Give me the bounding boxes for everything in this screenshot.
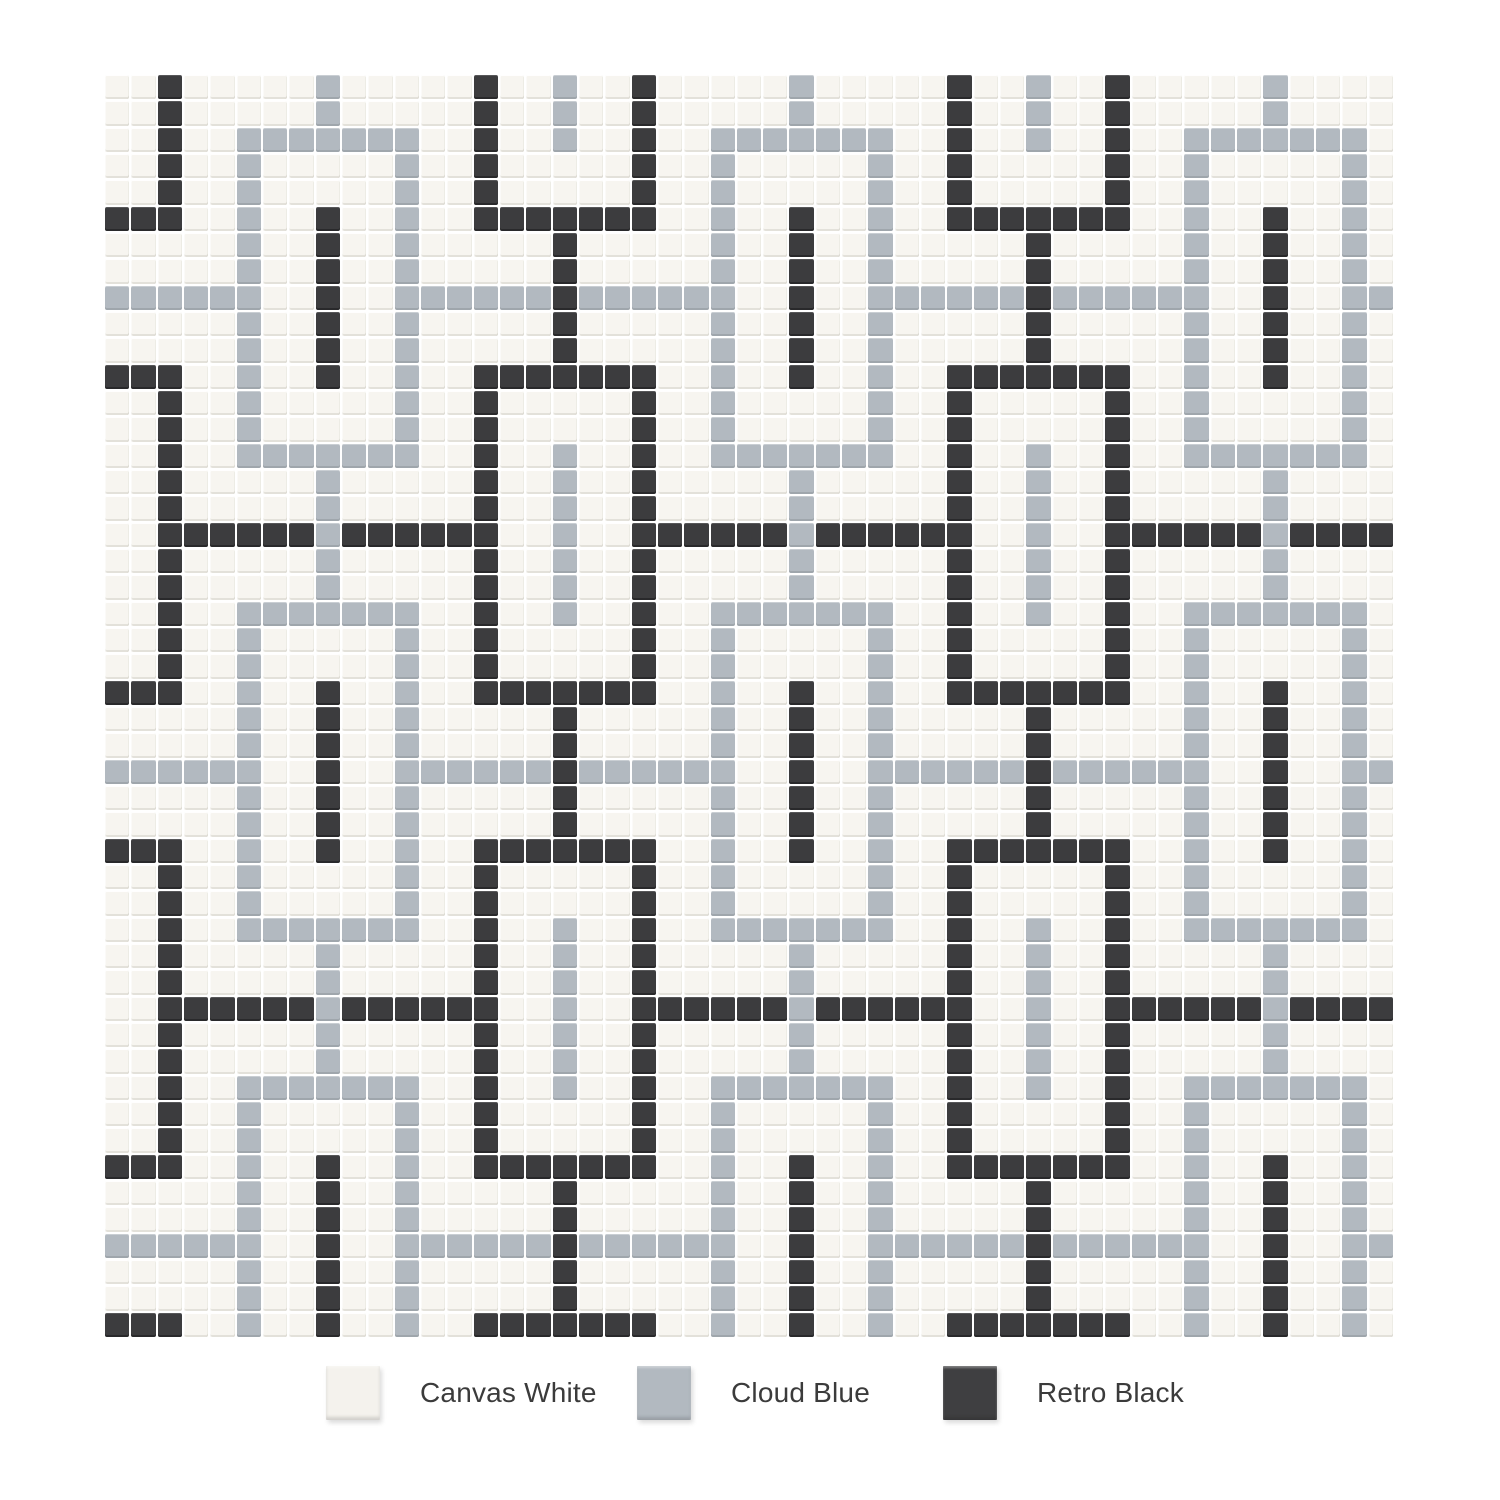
tile-retro-black bbox=[1105, 391, 1129, 415]
tile-canvas-white bbox=[526, 549, 550, 573]
tile-retro-black bbox=[868, 523, 892, 547]
tile-retro-black bbox=[632, 549, 656, 573]
tile-cloud-blue bbox=[1342, 338, 1366, 362]
tile-canvas-white bbox=[342, 891, 366, 915]
tile-canvas-white bbox=[500, 391, 524, 415]
tile-cloud-blue bbox=[1316, 1076, 1340, 1100]
tile-cloud-blue bbox=[395, 654, 419, 678]
tile-cloud-blue bbox=[1184, 391, 1208, 415]
tile-canvas-white bbox=[131, 918, 155, 942]
tile-cloud-blue bbox=[1158, 286, 1182, 310]
tile-retro-black bbox=[316, 1313, 340, 1337]
tile-retro-black bbox=[131, 681, 155, 705]
tile-cloud-blue bbox=[263, 918, 287, 942]
tile-canvas-white bbox=[895, 891, 919, 915]
tile-canvas-white bbox=[605, 391, 629, 415]
tile-canvas-white bbox=[737, 760, 761, 784]
tile-canvas-white bbox=[895, 1181, 919, 1205]
tile-retro-black bbox=[158, 1128, 182, 1152]
tile-canvas-white bbox=[1105, 1260, 1129, 1284]
tile-canvas-white bbox=[895, 1260, 919, 1284]
tile-retro-black bbox=[316, 1181, 340, 1205]
tile-cloud-blue bbox=[237, 654, 261, 678]
tile-canvas-white bbox=[1132, 575, 1156, 599]
tile-canvas-white bbox=[1079, 312, 1103, 336]
tile-canvas-white bbox=[105, 628, 129, 652]
tile-cloud-blue bbox=[1237, 918, 1261, 942]
tile-canvas-white bbox=[1211, 391, 1235, 415]
tile-cloud-blue bbox=[263, 128, 287, 152]
tile-canvas-white bbox=[1158, 180, 1182, 204]
tile-canvas-white bbox=[105, 312, 129, 336]
tile-retro-black bbox=[158, 391, 182, 415]
tile-canvas-white bbox=[1369, 338, 1393, 362]
tile-canvas-white bbox=[105, 1023, 129, 1047]
tile-canvas-white bbox=[763, 1023, 787, 1047]
tile-cloud-blue bbox=[237, 1155, 261, 1179]
tile-retro-black bbox=[1053, 839, 1077, 863]
tile-canvas-white bbox=[526, 575, 550, 599]
tile-canvas-white bbox=[789, 154, 813, 178]
tile-canvas-white bbox=[1316, 1181, 1340, 1205]
tile-canvas-white bbox=[921, 1155, 945, 1179]
tile-canvas-white bbox=[789, 1128, 813, 1152]
tile-canvas-white bbox=[447, 259, 471, 283]
tile-retro-black bbox=[895, 523, 919, 547]
tile-canvas-white bbox=[184, 1076, 208, 1100]
tile-canvas-white bbox=[974, 786, 998, 810]
tile-canvas-white bbox=[763, 1260, 787, 1284]
tile-retro-black bbox=[553, 1181, 577, 1205]
tile-canvas-white bbox=[105, 417, 129, 441]
tile-canvas-white bbox=[1158, 918, 1182, 942]
tile-retro-black bbox=[158, 1313, 182, 1337]
tile-canvas-white bbox=[500, 338, 524, 362]
tile-canvas-white bbox=[895, 1049, 919, 1073]
tile-canvas-white bbox=[921, 628, 945, 652]
tile-canvas-white bbox=[105, 180, 129, 204]
tile-canvas-white bbox=[842, 338, 866, 362]
tile-canvas-white bbox=[1132, 1049, 1156, 1073]
tile-cloud-blue bbox=[868, 338, 892, 362]
tile-canvas-white bbox=[526, 1181, 550, 1205]
tile-retro-black bbox=[789, 365, 813, 389]
tile-canvas-white bbox=[1000, 180, 1024, 204]
tile-canvas-white bbox=[1000, 391, 1024, 415]
tile-canvas-white bbox=[447, 444, 471, 468]
tile-retro-black bbox=[632, 444, 656, 468]
tile-canvas-white bbox=[842, 180, 866, 204]
tile-canvas-white bbox=[289, 1234, 313, 1258]
tile-canvas-white bbox=[342, 733, 366, 757]
tile-retro-black bbox=[789, 786, 813, 810]
tile-canvas-white bbox=[816, 101, 840, 125]
tile-retro-black bbox=[316, 312, 340, 336]
tile-canvas-white bbox=[368, 865, 392, 889]
tile-cloud-blue bbox=[842, 444, 866, 468]
tile-canvas-white bbox=[105, 444, 129, 468]
tile-retro-black bbox=[1263, 707, 1287, 731]
tile-canvas-white bbox=[1316, 1128, 1340, 1152]
tile-canvas-white bbox=[263, 180, 287, 204]
tile-canvas-white bbox=[421, 75, 445, 99]
tile-canvas-white bbox=[921, 496, 945, 520]
tile-cloud-blue bbox=[1105, 286, 1129, 310]
tile-retro-black bbox=[158, 1155, 182, 1179]
tile-cloud-blue bbox=[711, 1076, 735, 1100]
tile-retro-black bbox=[947, 417, 971, 441]
tile-cloud-blue bbox=[1342, 1076, 1366, 1100]
tile-canvas-white bbox=[816, 233, 840, 257]
tile-retro-black bbox=[474, 417, 498, 441]
tile-canvas-white bbox=[184, 444, 208, 468]
tile-cloud-blue bbox=[237, 312, 261, 336]
tile-canvas-white bbox=[474, 812, 498, 836]
tile-canvas-white bbox=[1237, 101, 1261, 125]
tile-canvas-white bbox=[974, 707, 998, 731]
tile-canvas-white bbox=[816, 365, 840, 389]
tile-canvas-white bbox=[895, 1207, 919, 1231]
tile-canvas-white bbox=[763, 707, 787, 731]
tile-canvas-white bbox=[184, 733, 208, 757]
tile-cloud-blue bbox=[1263, 470, 1287, 494]
tile-cloud-blue bbox=[1105, 1234, 1129, 1258]
tile-cloud-blue bbox=[789, 997, 813, 1021]
tile-canvas-white bbox=[1237, 286, 1261, 310]
tile-cloud-blue bbox=[1026, 602, 1050, 626]
tile-cloud-blue bbox=[868, 865, 892, 889]
tile-canvas-white bbox=[684, 891, 708, 915]
tile-canvas-white bbox=[763, 470, 787, 494]
tile-cloud-blue bbox=[789, 75, 813, 99]
tile-retro-black bbox=[1105, 523, 1129, 547]
tile-canvas-white bbox=[895, 101, 919, 125]
tile-retro-black bbox=[789, 233, 813, 257]
tile-cloud-blue bbox=[1026, 496, 1050, 520]
tile-canvas-white bbox=[1237, 470, 1261, 494]
tile-canvas-white bbox=[842, 1155, 866, 1179]
tile-retro-black bbox=[789, 1155, 813, 1179]
tile-cloud-blue bbox=[395, 1234, 419, 1258]
tile-canvas-white bbox=[447, 496, 471, 520]
tile-canvas-white bbox=[263, 681, 287, 705]
tile-canvas-white bbox=[1237, 75, 1261, 99]
tile-canvas-white bbox=[1053, 549, 1077, 573]
tile-canvas-white bbox=[763, 391, 787, 415]
tile-canvas-white bbox=[342, 207, 366, 231]
tile-canvas-white bbox=[184, 891, 208, 915]
tile-cloud-blue bbox=[711, 365, 735, 389]
tile-canvas-white bbox=[816, 312, 840, 336]
tile-canvas-white bbox=[1079, 997, 1103, 1021]
tile-canvas-white bbox=[526, 786, 550, 810]
tile-retro-black bbox=[579, 365, 603, 389]
tile-retro-black bbox=[816, 997, 840, 1021]
tile-canvas-white bbox=[605, 891, 629, 915]
tile-cloud-blue bbox=[658, 1234, 682, 1258]
tile-retro-black bbox=[1026, 760, 1050, 784]
tile-canvas-white bbox=[921, 1181, 945, 1205]
tile-canvas-white bbox=[263, 233, 287, 257]
tile-canvas-white bbox=[131, 786, 155, 810]
tile-canvas-white bbox=[816, 1313, 840, 1337]
tile-canvas-white bbox=[1369, 681, 1393, 705]
tile-cloud-blue bbox=[395, 865, 419, 889]
tile-canvas-white bbox=[1000, 75, 1024, 99]
tile-canvas-white bbox=[1316, 944, 1340, 968]
tile-canvas-white bbox=[1342, 1023, 1366, 1047]
tile-canvas-white bbox=[289, 470, 313, 494]
tile-canvas-white bbox=[553, 391, 577, 415]
tile-canvas-white bbox=[1132, 444, 1156, 468]
tile-canvas-white bbox=[974, 865, 998, 889]
tile-canvas-white bbox=[553, 154, 577, 178]
tile-canvas-white bbox=[1342, 101, 1366, 125]
tile-retro-black bbox=[447, 523, 471, 547]
tile-canvas-white bbox=[421, 338, 445, 362]
tile-canvas-white bbox=[1053, 865, 1077, 889]
tile-cloud-blue bbox=[1132, 1234, 1156, 1258]
tile-canvas-white bbox=[658, 391, 682, 415]
tile-retro-black bbox=[632, 496, 656, 520]
tile-cloud-blue bbox=[868, 1207, 892, 1231]
tile-retro-black bbox=[947, 575, 971, 599]
tile-canvas-white bbox=[131, 1076, 155, 1100]
tile-retro-black bbox=[1026, 1207, 1050, 1231]
tile-cloud-blue bbox=[237, 839, 261, 863]
tile-canvas-white bbox=[605, 602, 629, 626]
tile-canvas-white bbox=[1158, 628, 1182, 652]
tile-canvas-white bbox=[500, 128, 524, 152]
tile-canvas-white bbox=[421, 1128, 445, 1152]
tile-cloud-blue bbox=[526, 1234, 550, 1258]
tile-retro-black bbox=[947, 444, 971, 468]
tile-canvas-white bbox=[579, 1286, 603, 1310]
tile-cloud-blue bbox=[237, 1128, 261, 1152]
tile-canvas-white bbox=[1316, 470, 1340, 494]
tile-cloud-blue bbox=[711, 1313, 735, 1337]
tile-retro-black bbox=[711, 997, 735, 1021]
tile-canvas-white bbox=[1369, 1155, 1393, 1179]
tile-cloud-blue bbox=[711, 207, 735, 231]
tile-canvas-white bbox=[1026, 1102, 1050, 1126]
tile-cloud-blue bbox=[395, 286, 419, 310]
tile-retro-black bbox=[789, 1313, 813, 1337]
tile-canvas-white bbox=[421, 1155, 445, 1179]
tile-cloud-blue bbox=[789, 575, 813, 599]
tile-canvas-white bbox=[1132, 549, 1156, 573]
tile-canvas-white bbox=[763, 891, 787, 915]
tile-canvas-white bbox=[895, 365, 919, 389]
tile-canvas-white bbox=[1184, 496, 1208, 520]
tile-retro-black bbox=[158, 1102, 182, 1126]
tile-canvas-white bbox=[711, 1049, 735, 1073]
tile-canvas-white bbox=[1132, 839, 1156, 863]
tile-canvas-white bbox=[263, 101, 287, 125]
tile-canvas-white bbox=[1290, 417, 1314, 441]
tile-canvas-white bbox=[131, 602, 155, 626]
tile-canvas-white bbox=[842, 312, 866, 336]
tile-canvas-white bbox=[316, 391, 340, 415]
tile-retro-black bbox=[1263, 733, 1287, 757]
tile-canvas-white bbox=[1290, 207, 1314, 231]
tile-canvas-white bbox=[684, 681, 708, 705]
tile-canvas-white bbox=[131, 233, 155, 257]
tile-canvas-white bbox=[421, 865, 445, 889]
canvas-white-swatch bbox=[326, 1366, 380, 1420]
tile-canvas-white bbox=[816, 259, 840, 283]
tile-canvas-white bbox=[1211, 549, 1235, 573]
tile-canvas-white bbox=[921, 891, 945, 915]
tile-canvas-white bbox=[763, 865, 787, 889]
tile-cloud-blue bbox=[711, 654, 735, 678]
cloud-blue-swatch bbox=[637, 1366, 691, 1420]
tile-canvas-white bbox=[210, 602, 234, 626]
tile-canvas-white bbox=[447, 1181, 471, 1205]
tile-retro-black bbox=[1105, 417, 1129, 441]
tile-canvas-white bbox=[1237, 970, 1261, 994]
tile-retro-black bbox=[947, 1023, 971, 1047]
tile-canvas-white bbox=[263, 312, 287, 336]
tile-canvas-white bbox=[368, 259, 392, 283]
tile-canvas-white bbox=[1263, 391, 1287, 415]
tile-canvas-white bbox=[1079, 180, 1103, 204]
tile-canvas-white bbox=[1369, 1102, 1393, 1126]
tile-cloud-blue bbox=[1184, 338, 1208, 362]
tile-cloud-blue bbox=[1132, 286, 1156, 310]
tile-canvas-white bbox=[131, 812, 155, 836]
tile-canvas-white bbox=[1316, 312, 1340, 336]
tile-canvas-white bbox=[868, 549, 892, 573]
tile-retro-black bbox=[1000, 1155, 1024, 1179]
tile-cloud-blue bbox=[1026, 101, 1050, 125]
tile-canvas-white bbox=[1211, 1207, 1235, 1231]
tile-canvas-white bbox=[526, 733, 550, 757]
tile-canvas-white bbox=[921, 1286, 945, 1310]
tile-cloud-blue bbox=[105, 1234, 129, 1258]
tile-cloud-blue bbox=[605, 286, 629, 310]
tile-canvas-white bbox=[1053, 101, 1077, 125]
tile-cloud-blue bbox=[1000, 1234, 1024, 1258]
tile-retro-black bbox=[158, 101, 182, 125]
tile-cloud-blue bbox=[395, 259, 419, 283]
tile-retro-black bbox=[789, 259, 813, 283]
tile-cloud-blue bbox=[895, 760, 919, 784]
tile-canvas-white bbox=[474, 1286, 498, 1310]
tile-cloud-blue bbox=[316, 602, 340, 626]
tile-canvas-white bbox=[395, 470, 419, 494]
tile-retro-black bbox=[632, 1049, 656, 1073]
tile-canvas-white bbox=[921, 865, 945, 889]
tile-canvas-white bbox=[1211, 365, 1235, 389]
tile-canvas-white bbox=[737, 496, 761, 520]
tile-canvas-white bbox=[500, 75, 524, 99]
tile-canvas-white bbox=[763, 259, 787, 283]
tile-cloud-blue bbox=[1263, 970, 1287, 994]
tile-canvas-white bbox=[1158, 259, 1182, 283]
tile-retro-black bbox=[553, 286, 577, 310]
tile-canvas-white bbox=[210, 681, 234, 705]
tile-canvas-white bbox=[1158, 154, 1182, 178]
tile-canvas-white bbox=[131, 1128, 155, 1152]
tile-canvas-white bbox=[500, 470, 524, 494]
tile-canvas-white bbox=[684, 865, 708, 889]
tile-retro-black bbox=[1053, 681, 1077, 705]
tile-cloud-blue bbox=[289, 602, 313, 626]
tile-retro-black bbox=[316, 286, 340, 310]
tile-canvas-white bbox=[1342, 575, 1366, 599]
tile-retro-black bbox=[1026, 365, 1050, 389]
tile-canvas-white bbox=[579, 233, 603, 257]
tile-canvas-white bbox=[1132, 628, 1156, 652]
tile-canvas-white bbox=[1000, 1128, 1024, 1152]
tile-retro-black bbox=[947, 944, 971, 968]
tile-canvas-white bbox=[421, 180, 445, 204]
tile-canvas-white bbox=[737, 391, 761, 415]
tile-canvas-white bbox=[263, 575, 287, 599]
tile-cloud-blue bbox=[1211, 1076, 1235, 1100]
tile-cloud-blue bbox=[395, 628, 419, 652]
tile-retro-black bbox=[1105, 128, 1129, 152]
tile-canvas-white bbox=[447, 575, 471, 599]
tile-retro-black bbox=[1263, 259, 1287, 283]
tile-canvas-white bbox=[1000, 154, 1024, 178]
tile-canvas-white bbox=[579, 654, 603, 678]
tile-canvas-white bbox=[842, 1207, 866, 1231]
tile-canvas-white bbox=[105, 259, 129, 283]
tile-canvas-white bbox=[658, 338, 682, 362]
tile-canvas-white bbox=[500, 602, 524, 626]
tile-canvas-white bbox=[1053, 444, 1077, 468]
tile-canvas-white bbox=[447, 839, 471, 863]
tile-canvas-white bbox=[974, 891, 998, 915]
tile-canvas-white bbox=[1158, 733, 1182, 757]
tile-canvas-white bbox=[553, 628, 577, 652]
tile-retro-black bbox=[947, 654, 971, 678]
tile-canvas-white bbox=[1184, 75, 1208, 99]
tile-canvas-white bbox=[210, 944, 234, 968]
tile-canvas-white bbox=[1079, 733, 1103, 757]
tile-cloud-blue bbox=[158, 286, 182, 310]
tile-retro-black bbox=[579, 839, 603, 863]
tile-canvas-white bbox=[816, 733, 840, 757]
tile-canvas-white bbox=[553, 180, 577, 204]
tile-canvas-white bbox=[526, 628, 550, 652]
tile-canvas-white bbox=[842, 575, 866, 599]
tile-canvas-white bbox=[895, 128, 919, 152]
tile-retro-black bbox=[263, 997, 287, 1021]
tile-cloud-blue bbox=[737, 602, 761, 626]
tile-canvas-white bbox=[763, 812, 787, 836]
tile-canvas-white bbox=[368, 575, 392, 599]
tile-retro-black bbox=[947, 602, 971, 626]
tile-cloud-blue bbox=[842, 918, 866, 942]
tile-canvas-white bbox=[368, 1260, 392, 1284]
tile-canvas-white bbox=[1158, 496, 1182, 520]
tile-canvas-white bbox=[210, 970, 234, 994]
tile-canvas-white bbox=[1053, 496, 1077, 520]
tile-cloud-blue bbox=[711, 786, 735, 810]
tile-cloud-blue bbox=[421, 286, 445, 310]
tile-canvas-white bbox=[500, 1128, 524, 1152]
tile-canvas-white bbox=[1000, 1286, 1024, 1310]
tile-canvas-white bbox=[895, 654, 919, 678]
tile-canvas-white bbox=[605, 944, 629, 968]
tile-canvas-white bbox=[658, 865, 682, 889]
tile-canvas-white bbox=[421, 233, 445, 257]
tile-cloud-blue bbox=[263, 444, 287, 468]
tile-canvas-white bbox=[605, 997, 629, 1021]
